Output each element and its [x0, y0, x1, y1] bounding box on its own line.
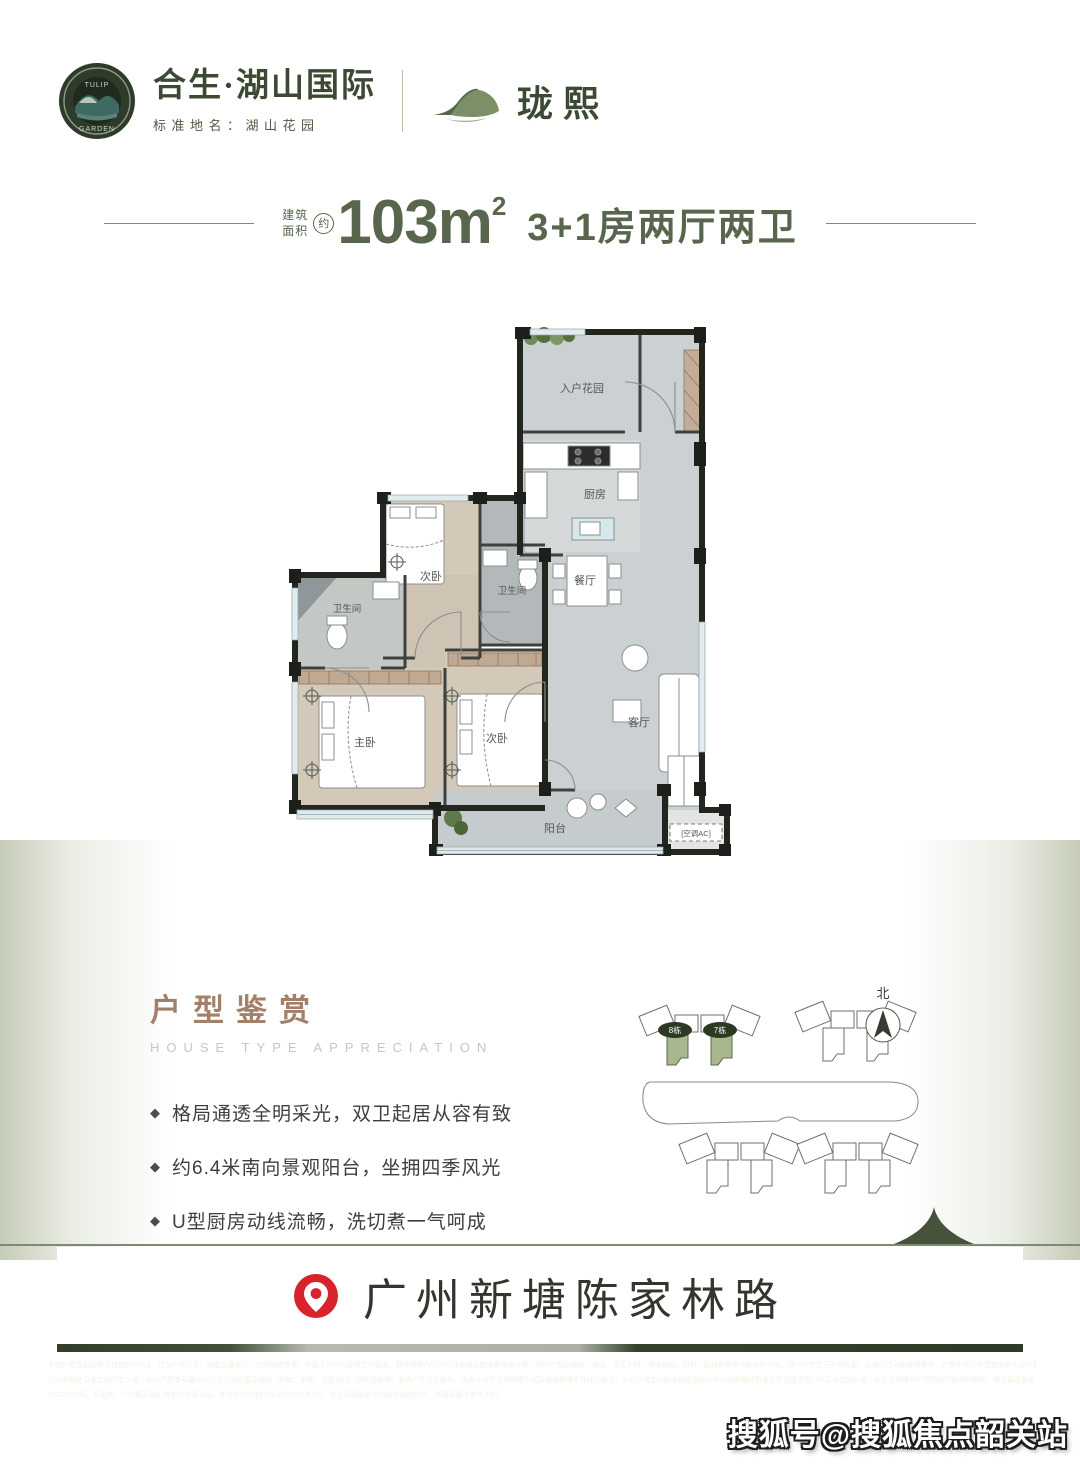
podium-outline [643, 1082, 918, 1124]
appreciation-subtitle: HOUSE TYPE APPRECIATION [150, 1040, 630, 1055]
building7-label: 7栋 [714, 1025, 726, 1035]
bullet-text: U型厨房动线流畅，洗切煮一气呵成 [172, 1207, 487, 1234]
area-number: 103m [337, 188, 492, 257]
area-prefix-line1: 建筑 [282, 207, 308, 223]
mountain-logo-icon [429, 77, 503, 125]
label-bedroom-top: 次卧 [420, 569, 442, 583]
mountain-peak-icon [878, 1207, 990, 1245]
brand-block: 合生·湖山国际 标准地名：湖山花园 [153, 68, 376, 133]
emblem-text-bottom: GARDEN [79, 126, 115, 133]
title-core: 建筑 面积 约 103m2 3+1房两厅两卫 [282, 192, 798, 254]
label-dining: 餐厅 [574, 573, 596, 587]
subbrand-name: 珑熙 [517, 75, 609, 127]
building-cluster [797, 1133, 918, 1193]
header-divider [402, 70, 403, 132]
location-pin-icon [293, 1273, 339, 1319]
diamond-bullet-icon: ◆ [150, 1105, 161, 1121]
title-line-right [826, 223, 976, 224]
brand-emblem-icon: TULIP GARDEN [57, 61, 137, 141]
list-item: ◆U型厨房动线流畅，洗切煮一气呵成 [150, 1207, 630, 1234]
label-balcony: 阳台 [544, 821, 566, 835]
label-bedroom-bottom: 次卧 [486, 731, 508, 745]
location-bar: 广州新塘陈家林路 [57, 1247, 1023, 1344]
location-address: 广州新塘陈家林路 [363, 1264, 787, 1328]
bullet-text: 格局通透全明采光，双卫起居从容有致 [172, 1099, 512, 1126]
approx-badge: 约 [313, 213, 334, 234]
balcony-pot [567, 798, 587, 818]
sink-center [483, 550, 507, 566]
building8-label: 8栋 [669, 1025, 681, 1035]
header: TULIP GARDEN 合生·湖山国际 标准地名：湖山花园 珑熙 [57, 58, 609, 144]
area-value: 103m2 [337, 192, 505, 254]
diamond-bullet-icon: ◆ [150, 1213, 161, 1229]
stove [568, 446, 610, 466]
room-balcony-floor [435, 790, 665, 852]
disclaimer: 本图户型信息面积为建筑约103㎡，仅为户型示意、功能位置展示，仅供购房参考，不属… [48, 1358, 1036, 1403]
floorplan: 入户花园 厨房 次卧 卫生间 餐厅 卫生间 主卧 次卧 客厅 阳台 [空调AC] [285, 322, 735, 882]
north-label: 北 [876, 986, 889, 1001]
compass-north-icon: 北 [866, 986, 900, 1042]
title-strip: 建筑 面积 约 103m2 3+1房两厅两卫 [0, 192, 1080, 254]
disclaimer-line2: 订的商品房买卖合同约定为准。部分户型单元展示的公共区域位置及结构（例如：电梯、消… [48, 1373, 1036, 1388]
watermark: 搜狐号@搜狐焦点韶关站 [728, 1410, 1068, 1454]
toilet-left [327, 623, 347, 649]
label-bath-center: 卫生间 [498, 585, 527, 597]
building-cluster-highlight [639, 1005, 760, 1065]
standard-name: 标准地名：湖山花园 [153, 115, 376, 134]
armchair [622, 645, 648, 671]
layout-spec: 3+1房两厅两卫 [527, 196, 797, 251]
label-bath-left: 卫生间 [333, 603, 362, 615]
label-kitchen: 厨房 [584, 488, 606, 501]
label-ac: [空调AC] [681, 828, 711, 838]
disclaimer-line1: 本图户型信息面积为建筑约103㎡，仅为户型示意、功能位置展示，仅供购房参考，不属… [48, 1358, 1036, 1373]
bullet-text: 约6.4米南向景观阳台，坐拥四季风光 [172, 1153, 501, 1180]
building-cluster [679, 1133, 800, 1193]
emblem-text-top: TULIP [85, 82, 110, 89]
label-master: 主卧 [354, 736, 376, 749]
area-superscript: 2 [492, 191, 505, 221]
sink-left [373, 582, 399, 599]
kitchen-cabinet [525, 472, 547, 518]
subbrand-block: 珑熙 [429, 75, 609, 127]
location-bar-underline [57, 1344, 1023, 1352]
appreciation-title: 户型鉴赏 [150, 985, 630, 1030]
diamond-bullet-icon: ◆ [150, 1159, 161, 1175]
fridge [618, 472, 638, 500]
siteplan-svg: 8栋 7栋 北 [608, 980, 930, 1218]
label-living: 客厅 [628, 715, 650, 729]
area-prefix: 建筑 面积 [282, 207, 308, 239]
siteplan: 8栋 7栋 北 [608, 980, 930, 1218]
list-item: ◆约6.4米南向景观阳台，坐拥四季风光 [150, 1153, 630, 1180]
label-entry-garden: 入户花园 [560, 381, 604, 395]
brand-name: 合生·湖山国际 [153, 68, 376, 104]
floorplan-svg: 入户花园 厨房 次卧 卫生间 餐厅 卫生间 主卧 次卧 客厅 阳台 [空调AC] [285, 322, 735, 882]
disclaimer-line3: 20220326号。开发商：广州聚天湖山房地产有限公司。本宣传材料制作时间为20… [48, 1388, 1036, 1403]
area-prefix-line2: 面积 [282, 223, 308, 239]
title-line-left [104, 223, 254, 224]
list-item: ◆格局通透全明采光，双卫起居从容有致 [150, 1099, 630, 1126]
